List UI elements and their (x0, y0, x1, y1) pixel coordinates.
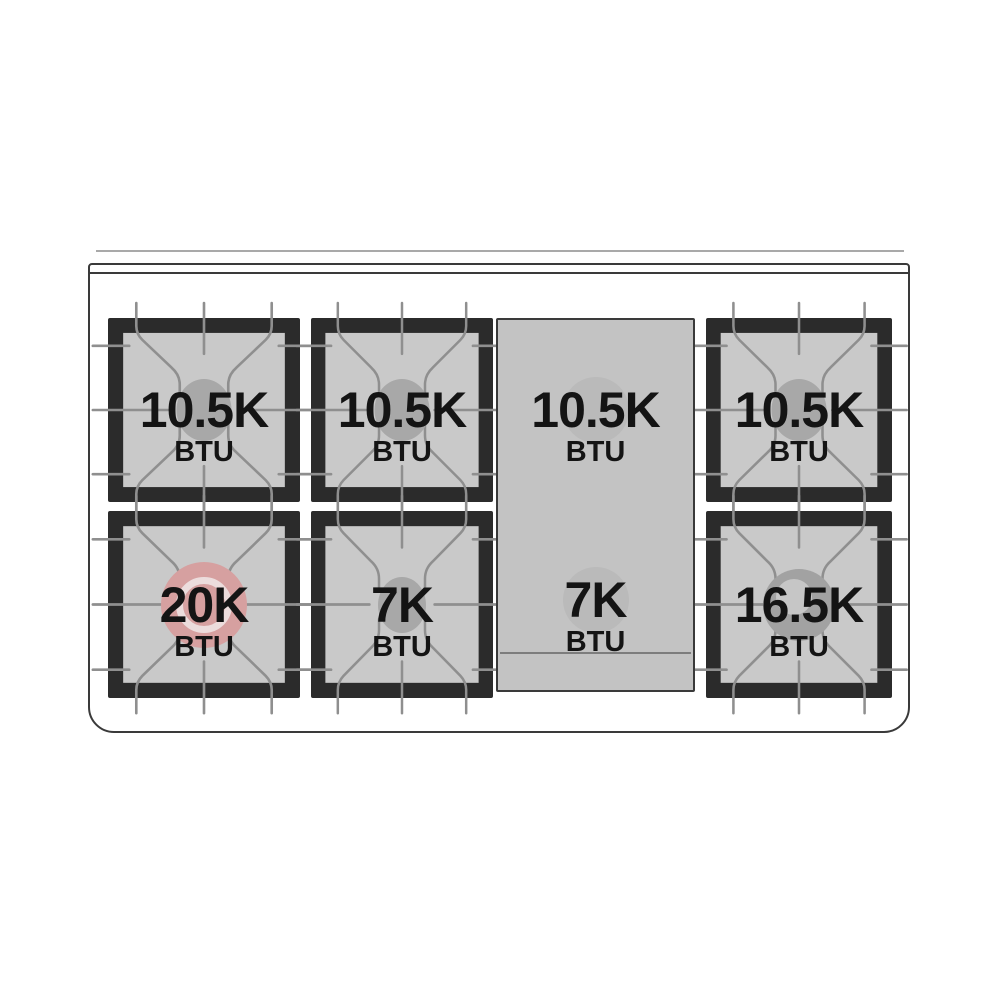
burner-right-front: 16.5K BTU (706, 511, 892, 698)
rear-edge-line (96, 250, 904, 252)
btu-value: 10.5K (108, 385, 300, 435)
griddle-plate: 10.5K BTU 7K BTU (496, 318, 695, 692)
btu-value: 10.5K (311, 385, 493, 435)
btu-value: 16.5K (706, 580, 892, 630)
burner-center-rear: 10.5K BTU (311, 318, 493, 502)
btu-value: 10.5K (498, 385, 693, 435)
griddle-front-label: 7K BTU (498, 575, 693, 657)
cooktop-diagram: 10.5K BTU 10.5K BTU 10.5K BTU 20K BTU (0, 0, 1000, 1000)
griddle-rear-label: 10.5K BTU (498, 385, 693, 467)
burner-label: 20K BTU (108, 580, 300, 662)
burner-left-rear: 10.5K BTU (108, 318, 300, 502)
top-trim-line (89, 272, 909, 274)
btu-unit: BTU (108, 633, 300, 662)
btu-unit: BTU (706, 438, 892, 467)
btu-value: 7K (311, 580, 493, 630)
burner-label: 10.5K BTU (706, 385, 892, 467)
griddle-handle-line (500, 652, 691, 654)
btu-value: 7K (498, 575, 693, 625)
burner-label: 7K BTU (311, 580, 493, 662)
btu-unit: BTU (311, 438, 493, 467)
btu-value: 10.5K (706, 385, 892, 435)
burner-label: 10.5K BTU (108, 385, 300, 467)
burner-label: 10.5K BTU (311, 385, 493, 467)
burner-left-front: 20K BTU (108, 511, 300, 698)
btu-unit: BTU (108, 438, 300, 467)
btu-unit: BTU (498, 438, 693, 467)
burner-label: 16.5K BTU (706, 580, 892, 662)
burner-center-front: 7K BTU (311, 511, 493, 698)
btu-unit: BTU (706, 633, 892, 662)
btu-value: 20K (108, 580, 300, 630)
burner-right-rear: 10.5K BTU (706, 318, 892, 502)
btu-unit: BTU (311, 633, 493, 662)
